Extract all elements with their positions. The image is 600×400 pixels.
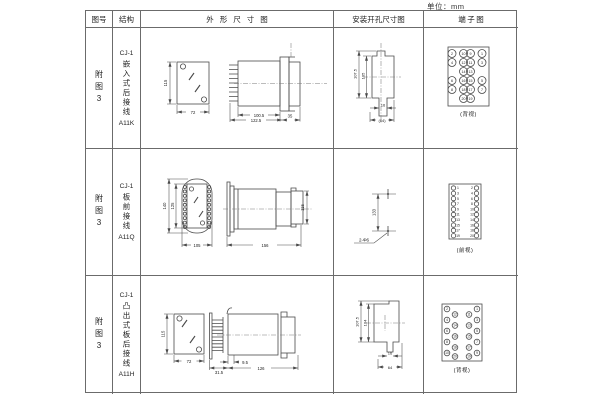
outline-cell-1: 115 72 100.5 [141, 28, 334, 149]
header-fig-no: 图号 [86, 11, 113, 28]
terminal-view-label-1: (背视) [460, 110, 477, 118]
structure-model-2: CJ-1 [120, 183, 134, 190]
install-diagram-3: 107.5 104 16 64 [334, 277, 423, 394]
svg-text:17: 17 [468, 88, 472, 92]
terminal-cell-1: 2109141211314136161558181772019 (背视) [424, 28, 518, 149]
svg-text:5: 5 [481, 79, 483, 83]
svg-text:15: 15 [467, 334, 471, 338]
svg-text:17: 17 [467, 345, 471, 349]
svg-text:10: 10 [470, 207, 474, 211]
svg-text:19: 19 [468, 97, 472, 101]
header-install-label: 安装开孔尺寸图 [352, 14, 405, 25]
header-structure-label: 结构 [119, 14, 134, 25]
svg-text:16: 16 [453, 334, 457, 338]
svg-text:11: 11 [467, 312, 471, 316]
header-outline-label: 外形尺寸图 [200, 14, 274, 25]
svg-text:2: 2 [446, 307, 448, 311]
svg-text:5: 5 [457, 197, 459, 201]
terminal-cell-3: 2143658710912111413161518172019 (背视) [424, 276, 518, 394]
svg-text:7: 7 [481, 88, 483, 92]
dim-r3-front-w: 72 [187, 358, 192, 363]
svg-text:1: 1 [481, 52, 483, 56]
svg-text:16: 16 [470, 223, 474, 227]
terminal-pins-3: 2143658710912111413161518172019 [444, 306, 480, 359]
svg-text:18: 18 [470, 229, 474, 233]
install-cell-2: 133 2-Φ6 [334, 149, 424, 276]
svg-text:17: 17 [456, 229, 460, 233]
svg-text:4: 4 [446, 318, 448, 322]
svg-text:12: 12 [453, 312, 457, 316]
structure-desc-2: 板前接线 [121, 193, 132, 231]
svg-text:15: 15 [456, 223, 460, 227]
dim-r1-install-inner: 105 [360, 72, 365, 79]
header-terminal: 端子图 [424, 11, 518, 28]
svg-text:6: 6 [451, 79, 453, 83]
structure-code-2: A11Q [118, 234, 134, 241]
dim-r1-install-slot: 16 [381, 102, 386, 107]
svg-text:20: 20 [461, 97, 465, 101]
install-diagram-2: 133 2-Φ6 [334, 149, 423, 275]
terminal-diagram-1: 2109141211314136161558181772019 (背视) [425, 28, 518, 148]
svg-text:14: 14 [453, 323, 457, 327]
dim-r1-overall: 122.5 [251, 118, 262, 123]
svg-text:3: 3 [481, 61, 483, 65]
dim-r3-front-h: 115 [160, 329, 165, 336]
outline-cell-3: 115 72 9.5 [141, 276, 334, 394]
header-terminal-label: 端子图 [457, 14, 486, 25]
header-structure: 结构 [113, 11, 141, 28]
structure-desc-1: 嵌入式后接线 [121, 60, 132, 117]
spec-table: 图号 结构 外形尺寸图 安装开孔尺寸图 端子图 附图3 CJ-1 嵌入式后接线 … [85, 10, 517, 393]
side-view-3 [210, 307, 296, 358]
fig-no-cell-1: 附图3 [86, 28, 113, 149]
fig-no-2: 附图3 [94, 194, 105, 231]
dim-r2-side-len: 156 [262, 243, 270, 248]
outline-diagram-3: 115 72 9.5 [141, 277, 333, 394]
dim-r2-front-inner: 125 [170, 202, 175, 210]
dim-r2-front-w: 105 [194, 243, 202, 248]
svg-text:19: 19 [467, 354, 471, 358]
header-install: 安装开孔尺寸图 [334, 11, 424, 28]
svg-text:15: 15 [468, 79, 472, 83]
svg-text:16: 16 [461, 79, 465, 83]
terminal-diagram-3: 2143658710912111413161518172019 (背视) [425, 277, 518, 394]
svg-text:7: 7 [476, 340, 478, 344]
svg-text:11: 11 [468, 61, 472, 65]
svg-text:13: 13 [467, 323, 471, 327]
front-view-3 [174, 314, 204, 354]
svg-text:18: 18 [461, 88, 465, 92]
structure-cell-3: CJ-1 凸出式板后接线 A11H [113, 276, 141, 394]
terminal-pins-2: 1234567891011121314151617181920 [451, 186, 478, 238]
svg-text:6: 6 [446, 329, 448, 333]
svg-text:14: 14 [470, 218, 474, 222]
dim-r3-pin-depth: 31.5 [215, 369, 224, 374]
svg-text:13: 13 [468, 70, 472, 74]
svg-text:4: 4 [451, 61, 453, 65]
spec-sheet-page: 单位：mm 图号 结构 外形尺寸图 安装开孔尺寸图 端子图 附图3 CJ-1 嵌… [0, 0, 600, 400]
structure-cell-2: CJ-1 板前接线 A11Q [113, 149, 141, 276]
dim-r3-body-len: 126 [258, 365, 266, 370]
structure-code-3: A11H [119, 371, 135, 378]
dim-r1-front-w: 72 [191, 110, 196, 115]
svg-text:9: 9 [469, 52, 471, 56]
dim-r2-side-h: 115 [300, 203, 305, 210]
dim-r3-install-inner: 104 [362, 318, 367, 325]
svg-text:10: 10 [445, 351, 449, 355]
svg-text:11: 11 [456, 213, 460, 217]
svg-text:1: 1 [476, 307, 478, 311]
structure-model-3: CJ-1 [120, 292, 134, 299]
structure-model-1: CJ-1 [120, 50, 134, 57]
svg-text:19: 19 [456, 234, 460, 238]
structure-code-1: A11K [119, 120, 134, 127]
svg-text:3: 3 [457, 192, 459, 196]
fig-no-3: 附图3 [94, 317, 105, 354]
svg-text:9: 9 [457, 207, 459, 211]
svg-text:5: 5 [476, 329, 478, 333]
svg-text:2: 2 [471, 186, 473, 190]
terminal-view-label-3: (背视) [453, 366, 470, 374]
header-outline: 外形尺寸图 [141, 11, 334, 28]
terminal-diagram-2: 1234567891011121314151617181920 (前视) [425, 149, 518, 275]
svg-text:12: 12 [461, 61, 465, 65]
svg-text:18: 18 [453, 345, 457, 349]
svg-text:13: 13 [456, 218, 460, 222]
svg-text:8: 8 [446, 340, 448, 344]
outline-cell-2: 140 125 105 156 [141, 149, 334, 276]
side-view-2 [227, 182, 303, 236]
svg-text:10: 10 [461, 52, 465, 56]
dim-r3-offset: 9.5 [242, 359, 248, 364]
svg-text:2: 2 [451, 52, 453, 56]
svg-text:20: 20 [453, 354, 457, 358]
dim-r3-install-slot: 16 [388, 350, 393, 355]
dim-r1-install-outer: 107.5 [353, 68, 358, 79]
structure-desc-3: 凸出式板后接线 [121, 302, 132, 369]
dim-r2-front-outer: 140 [162, 202, 167, 210]
install-diagram-1: 107.5 105 16 (64) [334, 28, 423, 148]
dim-r2-install-span: 133 [372, 208, 377, 216]
svg-text:4: 4 [471, 192, 473, 196]
front-view-1 [177, 62, 209, 104]
outline-diagram-2: 140 125 105 156 [141, 149, 333, 275]
dim-r3-install-bottom: 64 [388, 364, 393, 369]
svg-text:8: 8 [451, 88, 453, 92]
svg-text:8: 8 [471, 202, 473, 206]
dim-r1-install-bottom: (64) [378, 118, 386, 123]
dim-r1-rear: 35 [288, 113, 293, 118]
structure-cell-1: CJ-1 嵌入式后接线 A11K [113, 28, 141, 149]
svg-text:3: 3 [476, 318, 478, 322]
fig-no-cell-2: 附图3 [86, 149, 113, 276]
svg-text:12: 12 [470, 213, 474, 217]
terminal-dots-front [183, 186, 210, 229]
header-fig-no-label: 图号 [92, 14, 107, 25]
terminal-view-label-2: (前视) [456, 246, 473, 254]
dim-r2-install-holes: 2-Φ6 [359, 237, 370, 242]
svg-text:9: 9 [476, 351, 478, 355]
outline-diagram-1: 115 72 100.5 [141, 28, 333, 148]
terminal-cell-2: 1234567891011121314151617181920 (前视) [424, 149, 518, 276]
svg-text:1: 1 [457, 186, 459, 190]
side-view-1 [229, 57, 300, 111]
svg-text:6: 6 [471, 197, 473, 201]
dim-r3-install-outer: 107.5 [354, 316, 359, 327]
install-cell-3: 107.5 104 16 64 [334, 276, 424, 394]
fig-no-cell-3: 附图3 [86, 276, 113, 394]
svg-text:7: 7 [457, 202, 459, 206]
svg-text:14: 14 [461, 70, 465, 74]
dim-r1-front-h: 115 [163, 79, 168, 86]
install-cell-1: 107.5 105 16 (64) [334, 28, 424, 149]
terminal-pins-1: 2109141211314136161558181772019 [448, 50, 486, 103]
fig-no-1: 附图3 [94, 70, 105, 107]
svg-text:20: 20 [470, 234, 474, 238]
